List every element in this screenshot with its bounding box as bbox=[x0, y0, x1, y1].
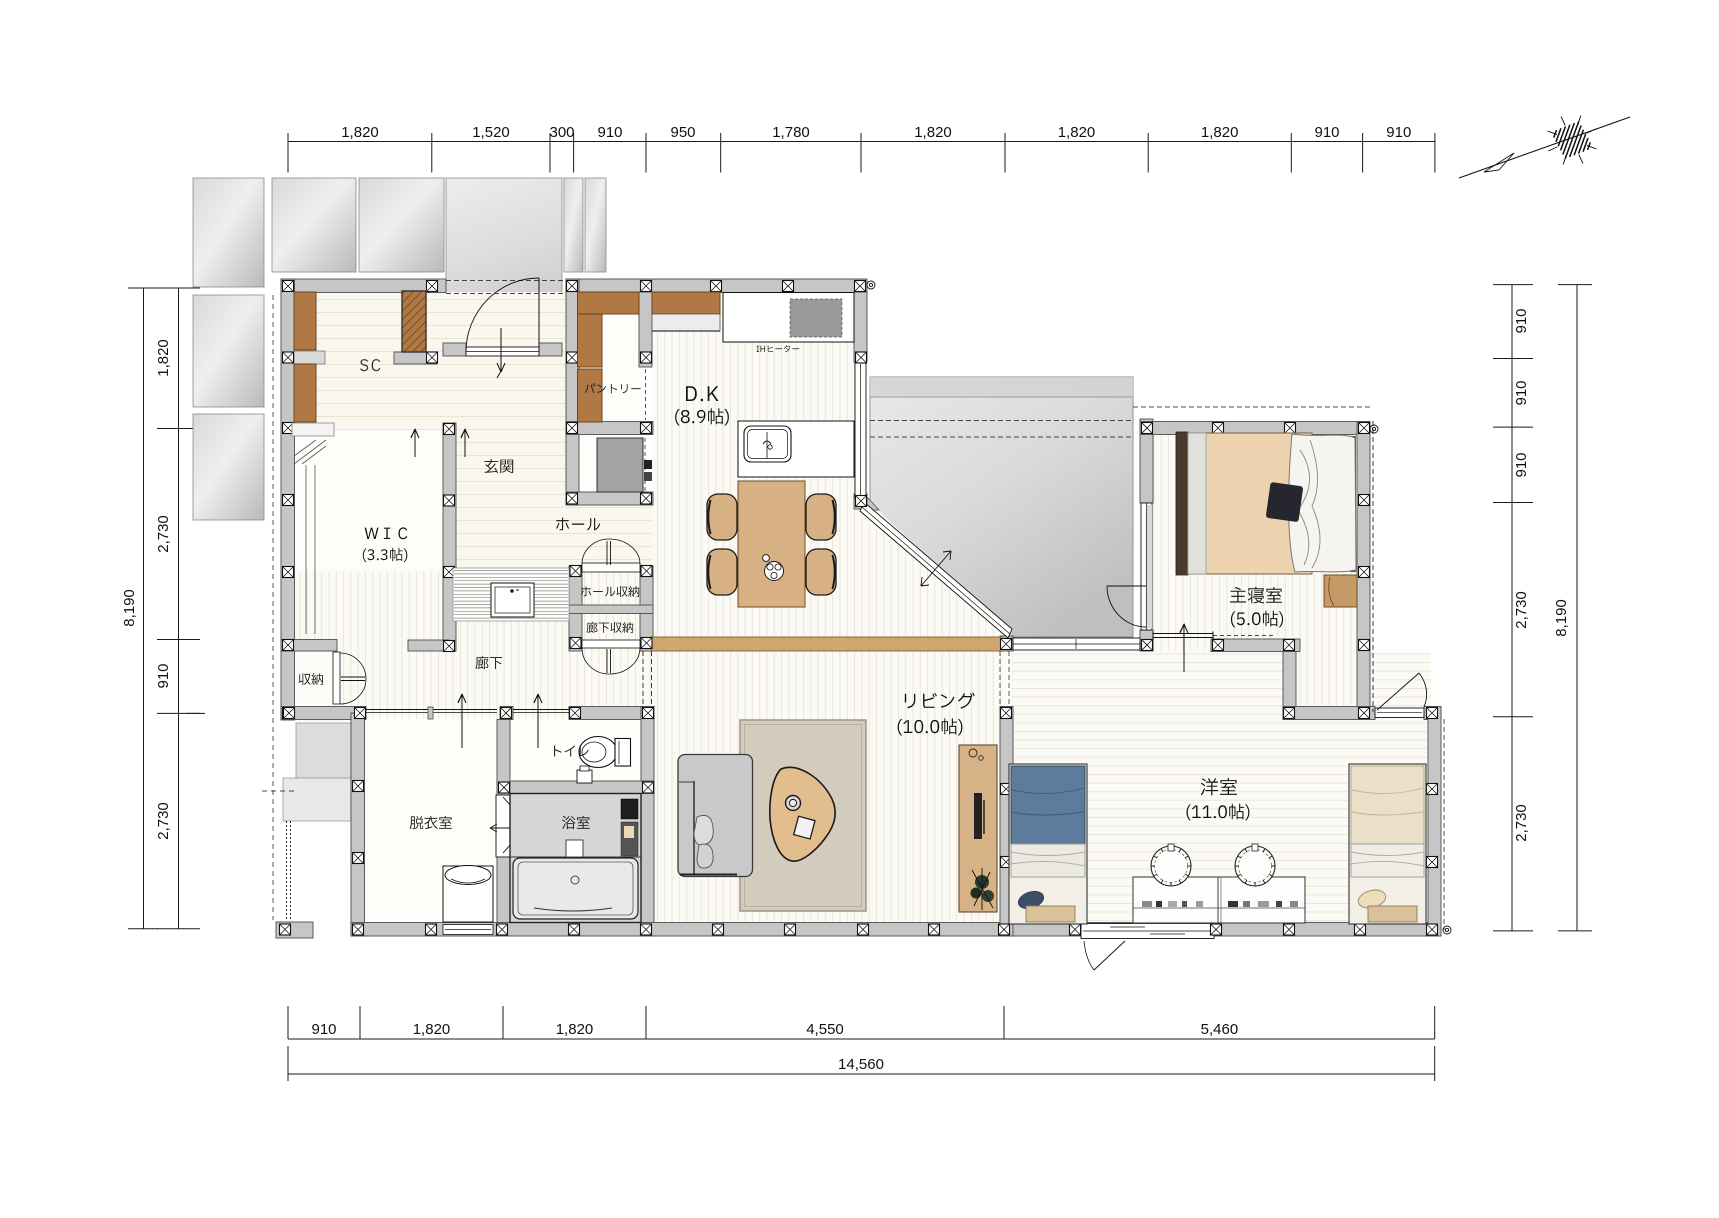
svg-text:8,190: 8,190 bbox=[1553, 599, 1570, 637]
svg-text:910: 910 bbox=[1386, 124, 1411, 141]
svg-text:8,190: 8,190 bbox=[121, 589, 138, 627]
svg-text:1,520: 1,520 bbox=[472, 124, 510, 141]
svg-text:1,820: 1,820 bbox=[155, 339, 172, 377]
svg-text:910: 910 bbox=[1513, 308, 1530, 333]
svg-text:1,820: 1,820 bbox=[1201, 124, 1239, 141]
svg-text:910: 910 bbox=[597, 124, 622, 141]
svg-text:14,560: 14,560 bbox=[838, 1056, 884, 1073]
svg-text:2,730: 2,730 bbox=[155, 802, 172, 840]
svg-text:910: 910 bbox=[311, 1021, 336, 1038]
svg-text:1,820: 1,820 bbox=[556, 1021, 594, 1038]
svg-text:1,820: 1,820 bbox=[914, 124, 952, 141]
svg-text:950: 950 bbox=[670, 124, 695, 141]
svg-text:2,730: 2,730 bbox=[1513, 591, 1530, 629]
svg-text:4,550: 4,550 bbox=[806, 1021, 844, 1038]
svg-text:2,730: 2,730 bbox=[1513, 804, 1530, 842]
svg-text:910: 910 bbox=[1314, 124, 1339, 141]
svg-text:910: 910 bbox=[155, 663, 172, 688]
svg-text:5,460: 5,460 bbox=[1201, 1021, 1239, 1038]
svg-text:1,820: 1,820 bbox=[413, 1021, 451, 1038]
svg-text:300: 300 bbox=[549, 124, 574, 141]
svg-text:910: 910 bbox=[1513, 452, 1530, 477]
svg-text:910: 910 bbox=[1513, 380, 1530, 405]
svg-text:1,780: 1,780 bbox=[772, 124, 810, 141]
svg-text:1,820: 1,820 bbox=[341, 124, 379, 141]
svg-text:1,820: 1,820 bbox=[1058, 124, 1096, 141]
svg-text:2,730: 2,730 bbox=[155, 515, 172, 553]
